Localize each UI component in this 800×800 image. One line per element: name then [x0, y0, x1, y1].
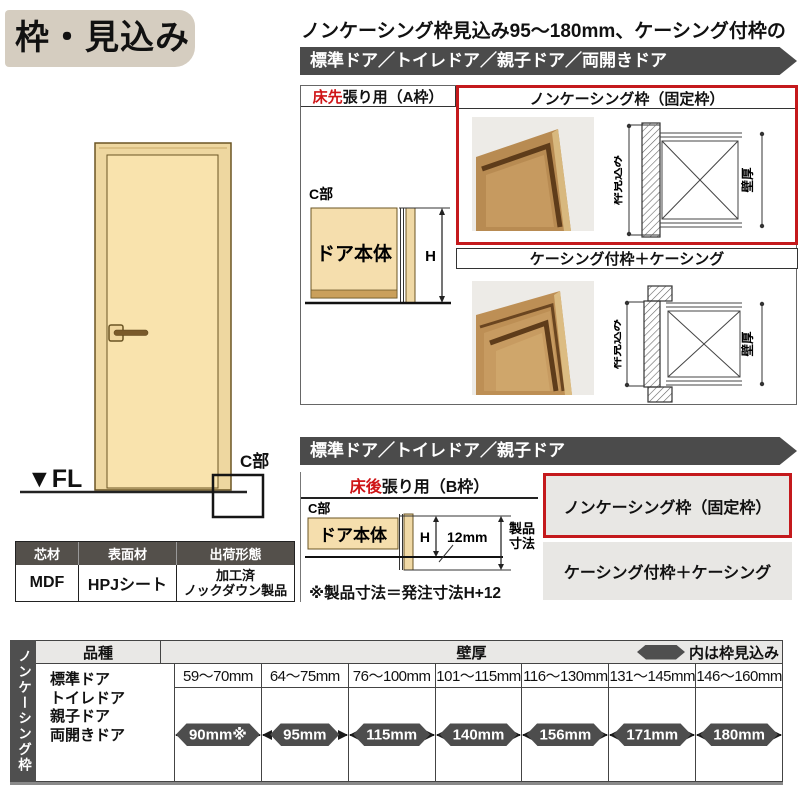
h-label: H	[425, 248, 436, 265]
frame-depth-spec-table: ノンケーシング枠 品種 壁厚 内は枠見込み 標準ドア トイレドア 親子ドア 両開…	[10, 640, 783, 785]
spec-column: 59～70mm 90mm※	[175, 664, 262, 781]
section-b-left: 床後張り用（B枠） C部 ドア本体 H 12mm	[300, 472, 538, 602]
section-b-header: 床後張り用（B枠）	[301, 472, 538, 499]
door-types-banner-a: 標準ドア／トイレドア／親子ドア／両開きドア	[300, 47, 797, 75]
section-a-header: 床先張り用（A枠）	[301, 86, 456, 107]
wall-range: 59～70mm	[175, 664, 261, 688]
surface-material-header: 表面材	[79, 542, 177, 565]
depth-value-cell: 180mm	[696, 688, 782, 781]
door-panel	[107, 155, 218, 488]
depth-value-cell: 115mm	[349, 688, 435, 781]
page-title: 枠・見込み	[5, 10, 195, 67]
spec-column: 116～130mm 156mm	[522, 664, 609, 781]
wall-range: 146～160mm	[696, 664, 782, 688]
legend-label: 内は枠見込み	[689, 642, 779, 663]
door-type: 標準ドア	[50, 671, 174, 690]
wall-range: 116～130mm	[522, 664, 608, 688]
a-noncasing-content: 枠見込み 壁厚	[459, 109, 795, 243]
kind-header: 品種	[36, 641, 161, 663]
spec-column: 101～115mm 140mm	[436, 664, 523, 781]
depth-badge: 90mm※	[176, 723, 260, 746]
casing-frame-photo	[472, 281, 594, 395]
depth-value-cell: 140mm	[436, 688, 522, 781]
depth-value-cell: 156mm	[522, 688, 608, 781]
wall-range: 76～100mm	[349, 664, 435, 688]
frame-section-hatched	[644, 301, 660, 387]
product-size-label-2: 寸法	[509, 536, 535, 551]
depth-value-cell: 171mm	[609, 688, 695, 781]
floor-first-label: 床先	[313, 86, 343, 107]
wall-thickness-label: 壁厚	[740, 167, 755, 193]
depth-badge: 180mm	[700, 723, 778, 746]
spec-side-label: ノンケーシング枠	[10, 640, 36, 782]
a-frame-diagram: C部 ドア本体 H	[303, 107, 457, 405]
spec-table-main: 品種 壁厚 内は枠見込み 標準ドア トイレドア 親子ドア 両開きドア	[36, 640, 783, 782]
h-label: H	[420, 529, 430, 545]
gap-12mm-label: 12mm	[447, 529, 487, 545]
wall-thickness-header: 壁厚 内は枠見込み	[161, 641, 782, 663]
product-size-label-1: 製品	[508, 521, 535, 536]
door-types-cell: 標準ドア トイレドア 親子ドア 両開きドア	[36, 664, 175, 781]
door-type: 親子ドア	[50, 708, 174, 727]
depth-value-cell: 90mm※	[175, 688, 261, 781]
core-material-value: MDF	[16, 565, 79, 601]
surface-material-value: HPJシート	[79, 565, 177, 601]
spec-body-row: 標準ドア トイレドア 親子ドア 両開きドア 59～70mm 90mm※ 64～7…	[36, 664, 782, 781]
spec-column: 76～100mm 115mm	[349, 664, 436, 781]
shipping-form-value: 加工済 ノックダウン製品	[177, 565, 294, 601]
frame-strip	[404, 514, 413, 570]
spec-header-row: 品種 壁厚 内は枠見込み	[36, 641, 782, 664]
door-type: 両開きドア	[50, 727, 174, 746]
frame-section-hatched	[642, 123, 660, 237]
casing-cross-section: 枠見込み 壁厚	[614, 281, 794, 407]
casing-top	[648, 286, 672, 301]
door-types-banner-b: 標準ドア／トイレドア／親子ドア	[300, 437, 797, 465]
legend: 内は枠見込み	[637, 641, 779, 663]
depth-badge: 171mm	[613, 723, 691, 746]
b-frame-diagram: C部 ドア本体 H 12mm 製品 寸法	[303, 500, 539, 580]
core-material-header: 芯材	[16, 542, 79, 565]
shipping-line-1: 加工済	[216, 568, 255, 583]
noncasing-frame-photo	[472, 117, 594, 231]
shipping-line-2: ノックダウン製品	[184, 583, 287, 598]
shipping-form-header: 出荷形態	[177, 542, 294, 565]
frame-depth-label: 枠見込み	[614, 155, 624, 206]
a-frame-label: 張り用（A枠）	[343, 86, 444, 107]
materials-header-row: 芯材 表面材 出荷形態	[16, 542, 294, 565]
c-part-label: C部	[308, 501, 330, 516]
door-body-label: ドア本体	[316, 242, 393, 265]
frame-depth-label: 枠見込み	[614, 319, 623, 370]
materials-table: 芯材 表面材 出荷形態 MDF HPJシート 加工済 ノックダウン製品	[15, 541, 295, 602]
spec-column: 146～160mm 180mm	[696, 664, 782, 781]
spec-column: 64～75mm 95mm	[262, 664, 349, 781]
wall-header-label: 壁厚	[456, 642, 486, 663]
door-body-label: ドア本体	[319, 525, 388, 545]
wall-range: 131～145mm	[609, 664, 695, 688]
depth-badge: 140mm	[440, 723, 518, 746]
noncasing-cross-section: 枠見込み 壁厚	[614, 117, 794, 243]
a-casing-content: 枠見込み 壁厚	[456, 269, 798, 405]
a-noncasing-title: ノンケーシング枠（固定枠）	[459, 88, 795, 109]
wall-thickness-label: 壁厚	[740, 331, 755, 357]
section-b-floor-after: 床後張り用（B枠） C部 ドア本体 H 12mm	[300, 472, 797, 604]
depth-badge: 156mm	[527, 723, 605, 746]
depth-badge: 115mm	[353, 723, 430, 746]
depth-value-cell: 95mm	[262, 688, 348, 781]
floor-level-label: ▼FL	[27, 465, 82, 493]
b-noncasing-box: ノンケーシング枠（固定枠）	[543, 473, 792, 538]
spec-column: 131～145mm 171mm	[609, 664, 696, 781]
c-detail-label: C部	[240, 451, 269, 471]
floor-after-label: 床後	[350, 473, 382, 497]
wall-range: 64～75mm	[262, 664, 348, 688]
frame-strip	[406, 208, 415, 303]
casing-bottom	[648, 387, 672, 402]
b-frame-label: 張り用（B枠）	[382, 473, 490, 497]
door-elevation-figure: ▼FL C部	[0, 135, 300, 525]
a-casing-title: ケーシング付枠＋ケーシング	[456, 248, 798, 269]
door-type: トイレドア	[50, 690, 174, 709]
door-handle-lever	[114, 330, 148, 336]
a-noncasing-box: ノンケーシング枠（固定枠）	[456, 85, 798, 245]
catalog-page: 枠・見込み ノンケーシング枠見込み95～180mm、ケーシング付枠の場合 標準ド…	[0, 0, 800, 800]
section-a-floor-first: 床先張り用（A枠） C部 ドア本体 H ノンケーシング枠（固定枠）	[300, 85, 797, 405]
product-size-note: ※製品寸法＝発注寸法H+12	[309, 581, 501, 603]
materials-value-row: MDF HPJシート 加工済 ノックダウン製品	[16, 565, 294, 601]
legend-hexagon-icon	[637, 645, 685, 660]
b-casing-box: ケーシング付枠＋ケーシング	[543, 542, 792, 600]
depth-badge: 95mm	[270, 723, 339, 746]
c-part-label: C部	[309, 186, 333, 202]
wall-range: 101～115mm	[436, 664, 522, 688]
